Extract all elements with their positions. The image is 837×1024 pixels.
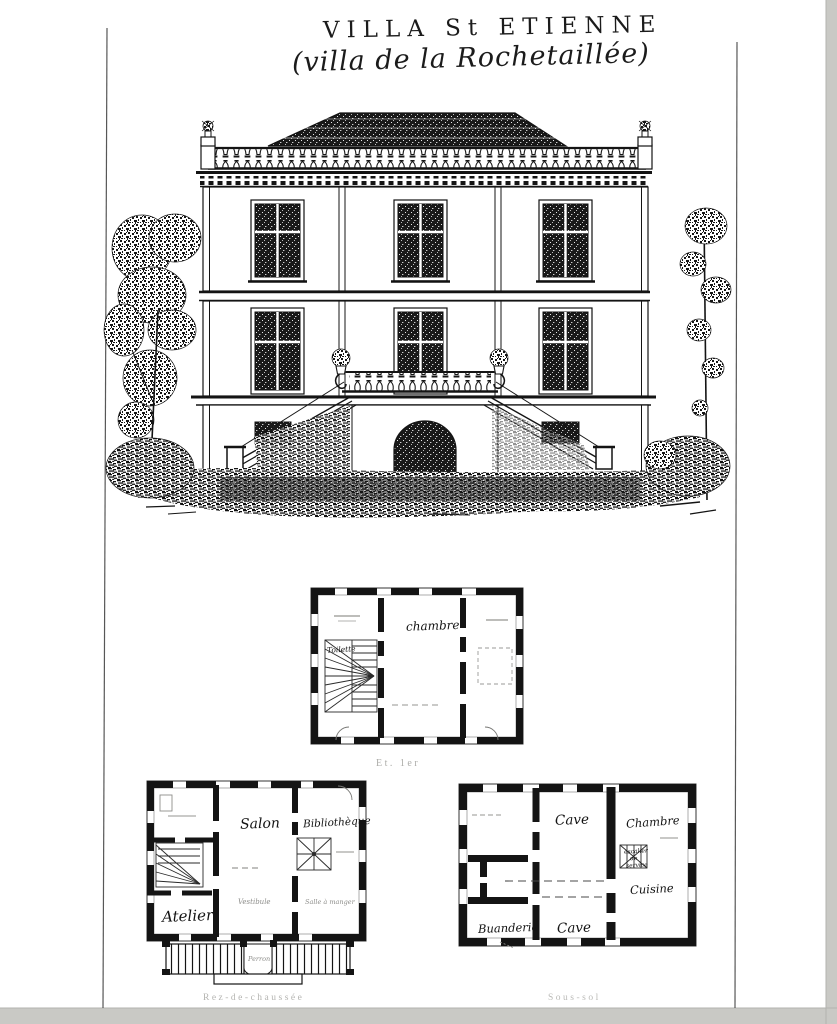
- caption-etage: Et. 1er: [376, 758, 420, 769]
- plan-basement-floor: Cave Chambre escalier de service Cuisine…: [459, 784, 696, 1003]
- room-label-perron: Perron: [247, 955, 270, 963]
- room-label-toilette: Toilette: [327, 644, 357, 655]
- urn-left: [201, 121, 215, 146]
- tree-left: [104, 214, 201, 498]
- room-label-atelier: Atelier: [160, 906, 215, 926]
- upper-floor: [203, 187, 648, 291]
- room-label-chambre-ss: Chambre: [626, 813, 681, 831]
- title-line-2: (villa de la Rochetaillée): [292, 38, 651, 78]
- room-label-salon: Salon: [240, 815, 280, 832]
- room-label-cave-sud: Cave: [557, 920, 592, 937]
- plate-border-right: [735, 42, 737, 1008]
- room-label-cave-nord: Cave: [555, 812, 590, 829]
- window-upper-right: [536, 200, 595, 282]
- room-label-buanderie: Buanderie: [477, 920, 539, 936]
- caption-rez-de-chaussee: Rez-de-chaussée: [203, 993, 304, 1003]
- window-lower-left: [251, 308, 304, 394]
- spiral-stair: [297, 838, 331, 870]
- string-course: [199, 292, 650, 301]
- window-upper-left: [248, 200, 307, 282]
- drawing-title: VILLA St ETIENNE (villa de la Rochetaill…: [292, 12, 663, 79]
- entrance-arch: [394, 421, 456, 474]
- tree-right: [644, 208, 731, 500]
- room-label-salle-a-manger: Salle à manger: [305, 898, 356, 906]
- window-upper-center: [391, 200, 450, 282]
- plan-first-floor: chambre Toilette Et. 1er: [311, 588, 523, 769]
- elevation-drawing: [104, 113, 731, 518]
- stair-ground-floor: [156, 843, 203, 887]
- caption-sous-sol: Sous-sol: [548, 993, 601, 1003]
- urn-right: [638, 121, 652, 146]
- scanner-strip-bottom: [0, 1008, 837, 1024]
- scanned-document-page: VILLA St ETIENNE (villa de la Rochetaill…: [0, 0, 837, 1024]
- scanner-strip-right: [826, 0, 837, 1024]
- room-label-vestibule: Vestibule: [238, 898, 271, 906]
- room-label-chambre-etage: chambre: [406, 618, 460, 634]
- stair-label-line3: service: [626, 861, 649, 869]
- scanned-plate: VILLA St ETIENNE (villa de la Rochetaill…: [0, 0, 837, 1024]
- ground: [138, 468, 716, 518]
- plan-ground-floor: Salon Bibliothèque Atelier Vestibule Sal…: [147, 781, 371, 1003]
- roof: [268, 113, 566, 146]
- plate-border-left: [103, 28, 107, 1008]
- cornice: [196, 173, 652, 187]
- window-lower-right: [539, 308, 592, 394]
- room-label-cuisine: Cuisine: [630, 881, 675, 897]
